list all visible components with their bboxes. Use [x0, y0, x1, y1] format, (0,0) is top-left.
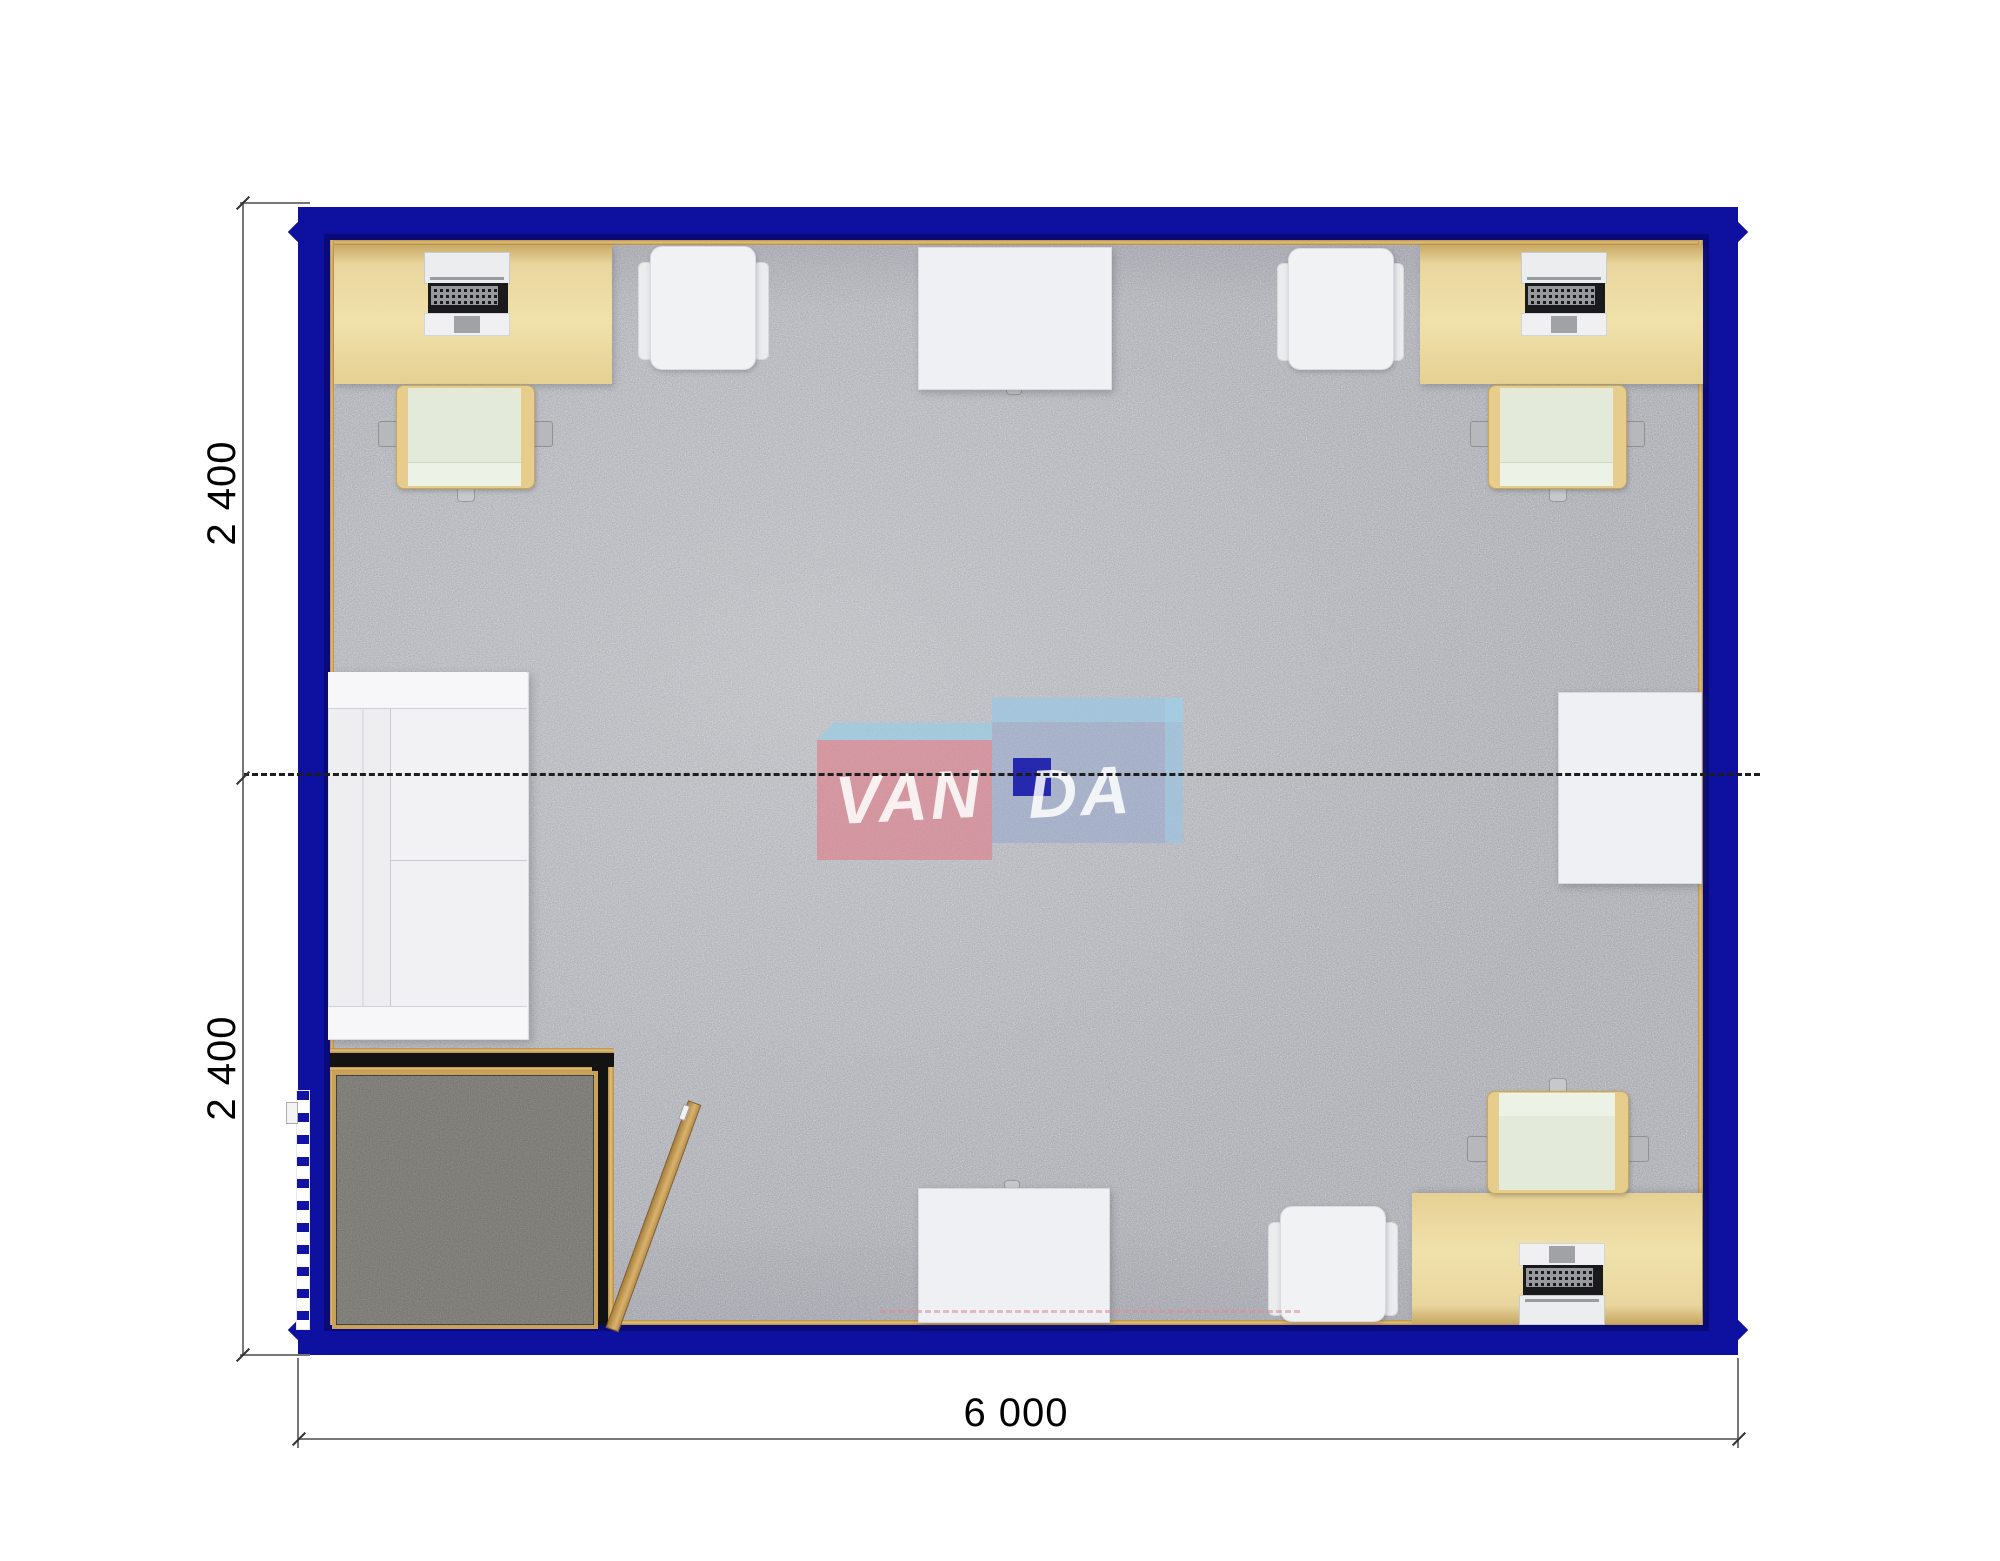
sofa-armrest-bottom	[328, 1006, 527, 1039]
keyboard-bottom-right	[1523, 1265, 1603, 1295]
floor-plan-canvas: VAN DA 2 400 2 400 6 000	[0, 0, 2000, 1561]
dimension-label-6000: 6 000	[946, 1392, 1086, 1434]
chair-armrest	[1627, 1136, 1649, 1162]
table-bottom-center	[918, 1188, 1110, 1323]
extension-line-bottom-left	[240, 1354, 310, 1356]
chair-armrest	[1467, 1136, 1489, 1162]
chair-front-edge	[1500, 462, 1613, 486]
chair-front-edge	[408, 462, 521, 486]
sofa-seat-cushion	[391, 861, 527, 1006]
system-unit-top-left	[424, 313, 510, 336]
visitor-chair-top-left	[650, 246, 756, 370]
sofa-seat-cushion	[391, 709, 527, 861]
watermark-text-right: DA	[1026, 752, 1134, 833]
watermark-remnant-line	[880, 1310, 1300, 1313]
visitor-chair-top-right	[1288, 248, 1394, 370]
sofa-backrest	[330, 709, 391, 1006]
meeting-table-top	[918, 247, 1112, 390]
chair-seat	[1500, 388, 1613, 462]
dimension-label-2400-top: 2 400	[202, 423, 242, 563]
vestibule-partition-top	[330, 1053, 614, 1067]
monitor-top-left	[424, 252, 510, 284]
chair-seat	[1499, 1116, 1615, 1190]
vestibule-floor	[332, 1071, 598, 1329]
chair-front-edge	[1499, 1093, 1615, 1117]
sofa-back-seam	[362, 709, 364, 1006]
keyboard-top-left	[428, 283, 508, 313]
exterior-door-handle	[286, 1102, 298, 1124]
keyboard-top-right	[1525, 283, 1605, 313]
sofa-armrest-top	[328, 672, 527, 709]
system-unit-bottom-right	[1519, 1243, 1605, 1266]
extension-line-bottom-right-v	[1737, 1358, 1739, 1448]
visitor-chair-bottom	[1280, 1206, 1386, 1322]
extension-line-top-left	[240, 202, 310, 204]
side-table-right	[1558, 692, 1702, 884]
dimension-line-horizontal	[298, 1438, 1738, 1440]
exterior-door	[296, 1090, 310, 1330]
partition-trim	[608, 1067, 614, 1325]
module-joint-line	[243, 773, 1760, 776]
watermark-text-left: VAN	[833, 756, 984, 840]
monitor-top-right	[1521, 252, 1607, 284]
extension-line-bottom-left-v	[297, 1358, 299, 1448]
dimension-label-2400-bottom: 2 400	[202, 998, 242, 1138]
vestibule-carpet-noise	[336, 1075, 594, 1325]
chair-seat	[408, 388, 521, 462]
watermark-logo: VAN DA	[805, 688, 1205, 873]
system-unit-top-right	[1521, 313, 1607, 336]
monitor-bottom-right	[1519, 1295, 1605, 1325]
